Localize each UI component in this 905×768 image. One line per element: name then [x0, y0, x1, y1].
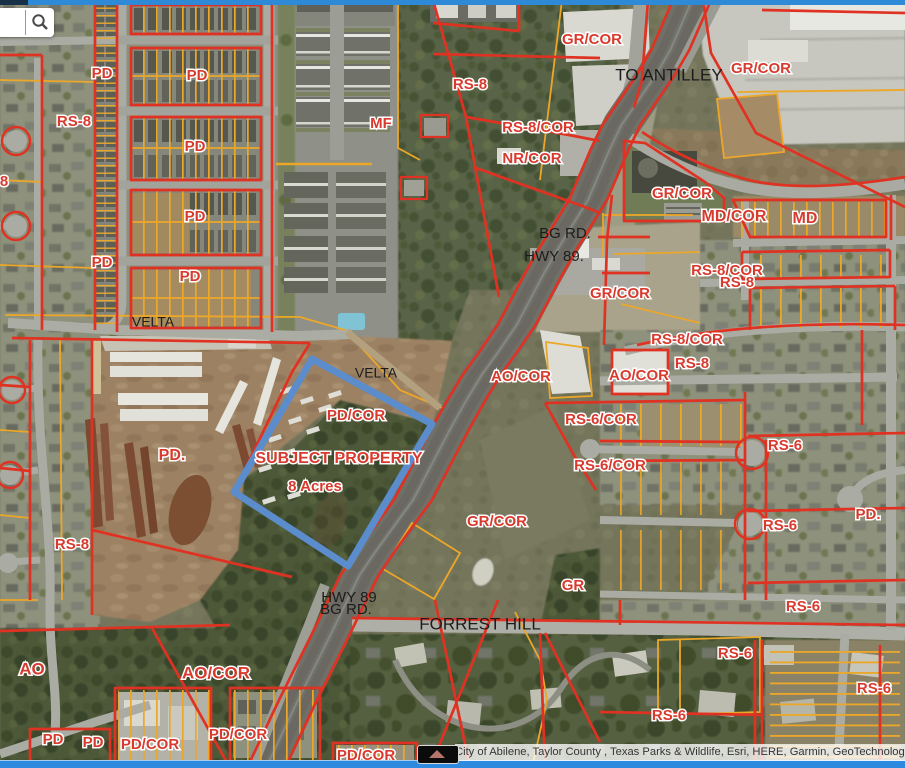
svg-text:MF: MF — [370, 115, 392, 132]
svg-text:GR/COR: GR/COR — [562, 31, 622, 48]
svg-text:PD: PD — [92, 254, 113, 271]
svg-text:8: 8 — [0, 173, 8, 190]
svg-text:RS-6: RS-6 — [768, 437, 802, 454]
svg-text:AO: AO — [19, 659, 45, 678]
svg-text:SUBJECT PROPERTY: SUBJECT PROPERTY — [255, 450, 422, 467]
svg-text:8 Acres: 8 Acres — [288, 478, 342, 495]
svg-text:RS-6/COR: RS-6/COR — [565, 411, 637, 428]
svg-text:RS-6: RS-6 — [718, 645, 752, 662]
svg-text:RS-8: RS-8 — [57, 113, 91, 130]
svg-text:AO/COR: AO/COR — [491, 368, 551, 385]
svg-text:PD/COR: PD/COR — [121, 736, 180, 753]
svg-text:RS-6: RS-6 — [652, 707, 686, 724]
svg-text:PD: PD — [185, 208, 206, 225]
svg-text:GR/COR: GR/COR — [467, 513, 527, 530]
svg-text:PD: PD — [83, 734, 104, 751]
svg-text:PD.: PD. — [855, 506, 880, 523]
svg-text:RS-8/COR: RS-8/COR — [502, 119, 574, 136]
svg-text:PD/COR: PD/COR — [209, 726, 268, 743]
svg-text:BG RD.: BG RD. — [539, 225, 591, 242]
svg-text:GR: GR — [562, 577, 585, 594]
svg-text:AO/COR: AO/COR — [609, 367, 669, 384]
svg-text:RS-6: RS-6 — [786, 598, 820, 615]
svg-text:PD: PD — [180, 268, 201, 285]
svg-text:RS-6/COR: RS-6/COR — [574, 457, 646, 474]
svg-text:PD: PD — [43, 731, 64, 748]
svg-text:RS-6: RS-6 — [857, 680, 891, 697]
svg-text:MD/COR: MD/COR — [702, 208, 767, 225]
svg-text:PD: PD — [92, 65, 113, 82]
svg-text:HWY 89.: HWY 89. — [524, 248, 584, 265]
svg-text:RS-8: RS-8 — [453, 76, 487, 93]
svg-text:MD: MD — [793, 210, 818, 227]
svg-text:RS-8: RS-8 — [55, 536, 89, 553]
svg-text:TO ANTILLEY: TO ANTILLEY — [615, 65, 722, 84]
svg-text:AO/COR: AO/COR — [182, 663, 250, 682]
svg-text:PD: PD — [187, 67, 208, 84]
svg-text:PD.: PD. — [159, 447, 186, 464]
svg-text:VELTA: VELTA — [132, 314, 175, 330]
svg-text:RS-8: RS-8 — [675, 355, 709, 372]
svg-text:GR/COR: GR/COR — [590, 285, 650, 302]
svg-text:RS-8/COR: RS-8/COR — [651, 331, 723, 348]
svg-text:FORREST HILL: FORREST HILL — [419, 614, 541, 633]
svg-text:NR/COR: NR/COR — [502, 150, 561, 167]
svg-text:RS-8: RS-8 — [720, 274, 754, 291]
svg-text:BG RD.: BG RD. — [320, 601, 372, 618]
svg-text:PD: PD — [185, 138, 206, 155]
svg-text:GR/COR: GR/COR — [731, 60, 791, 77]
svg-text:GR/COR: GR/COR — [652, 185, 712, 202]
svg-text:VELTA: VELTA — [355, 365, 398, 381]
svg-text:PD/COR: PD/COR — [327, 407, 386, 424]
svg-text:RS-6: RS-6 — [763, 517, 797, 534]
